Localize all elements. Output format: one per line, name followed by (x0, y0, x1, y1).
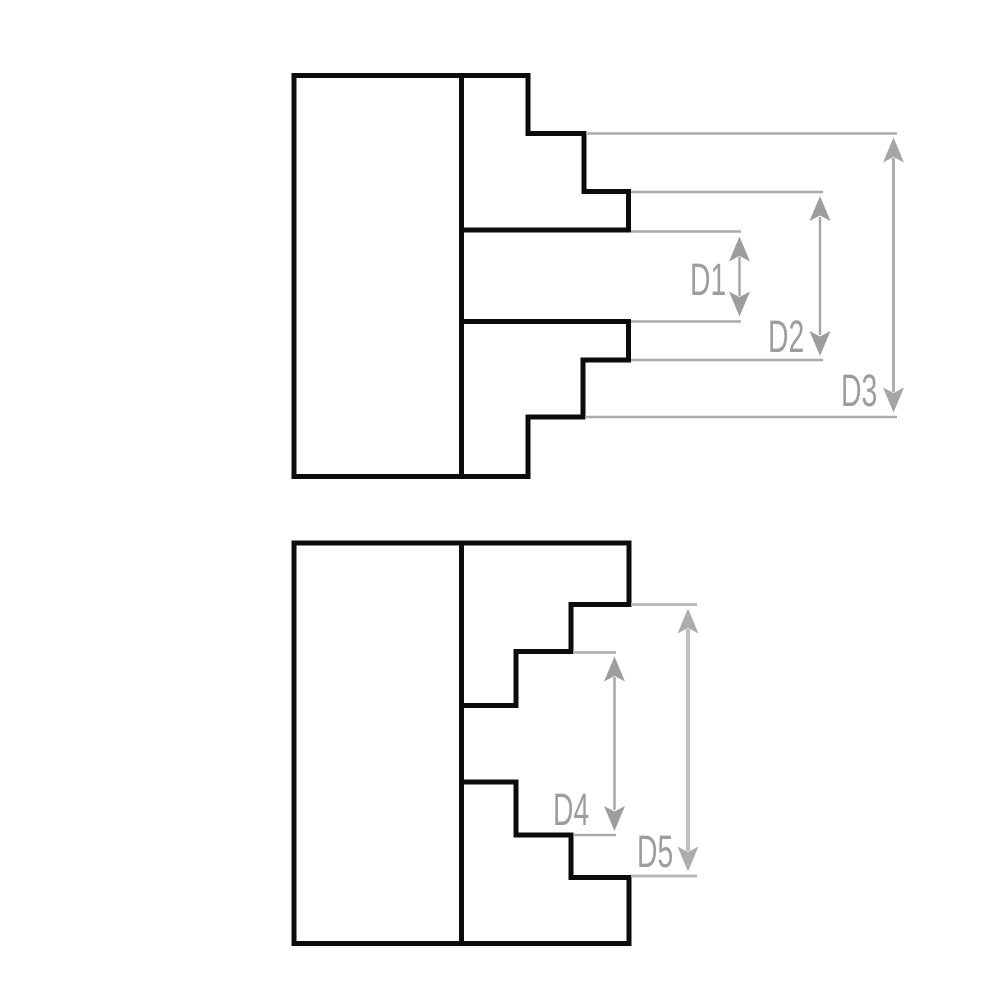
svg-text:D4: D4 (553, 784, 589, 834)
svg-text:D2: D2 (768, 311, 804, 361)
svg-text:D1: D1 (690, 254, 726, 304)
svg-text:D5: D5 (637, 826, 673, 876)
svg-text:D3: D3 (841, 365, 877, 415)
